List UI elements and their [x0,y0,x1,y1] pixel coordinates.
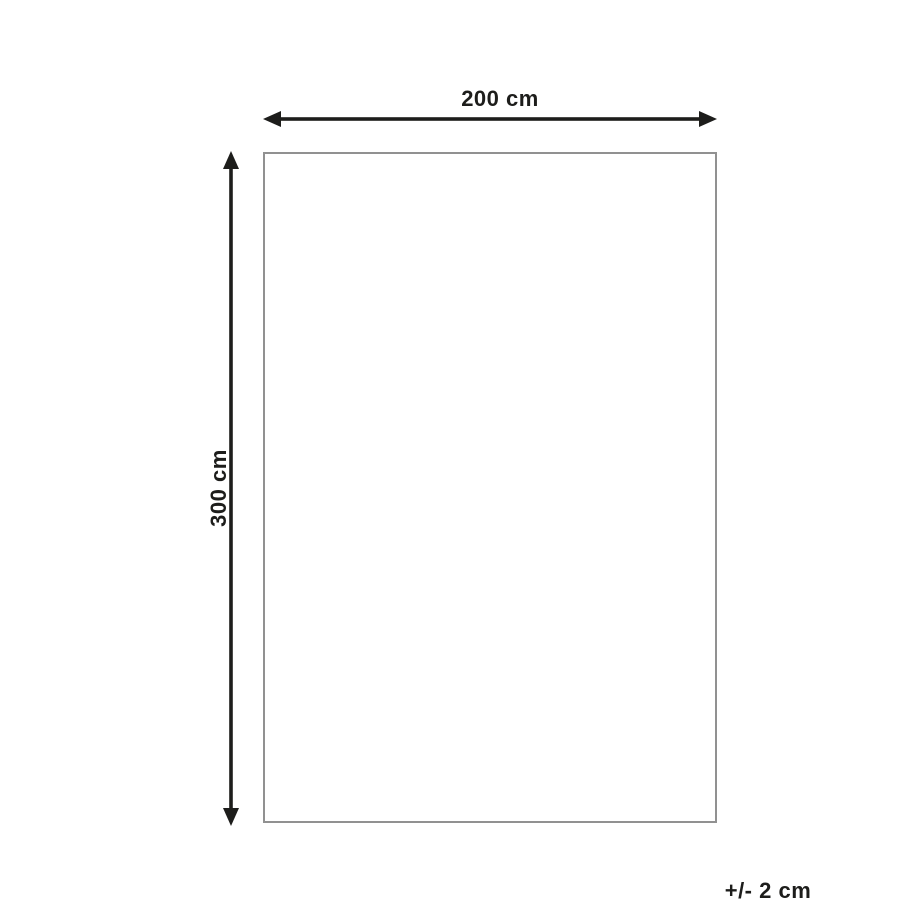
width-dimension-label: 200 cm [263,86,737,112]
product-outline-rectangle [263,152,717,823]
dimension-diagram: 200 cm 300 cm +/- 2 cm [0,0,920,920]
width-dimension-arrow [263,111,717,127]
height-dimension-label: 300 cm [206,449,232,527]
tolerance-label: +/- 2 cm [725,878,812,904]
